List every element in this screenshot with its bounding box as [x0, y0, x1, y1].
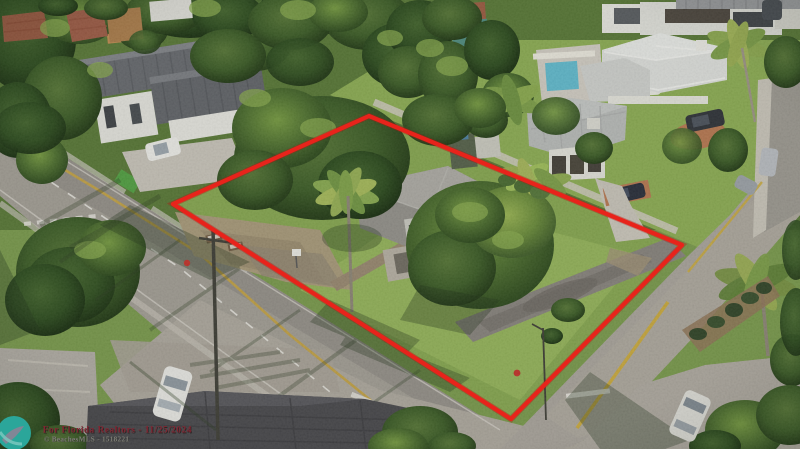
- svg-text:© BeachesMLS - 1518221: © BeachesMLS - 1518221: [44, 436, 129, 444]
- svg-text:For Florida Realtors - 11/25/2: For Florida Realtors - 11/25/2024: [43, 426, 192, 436]
